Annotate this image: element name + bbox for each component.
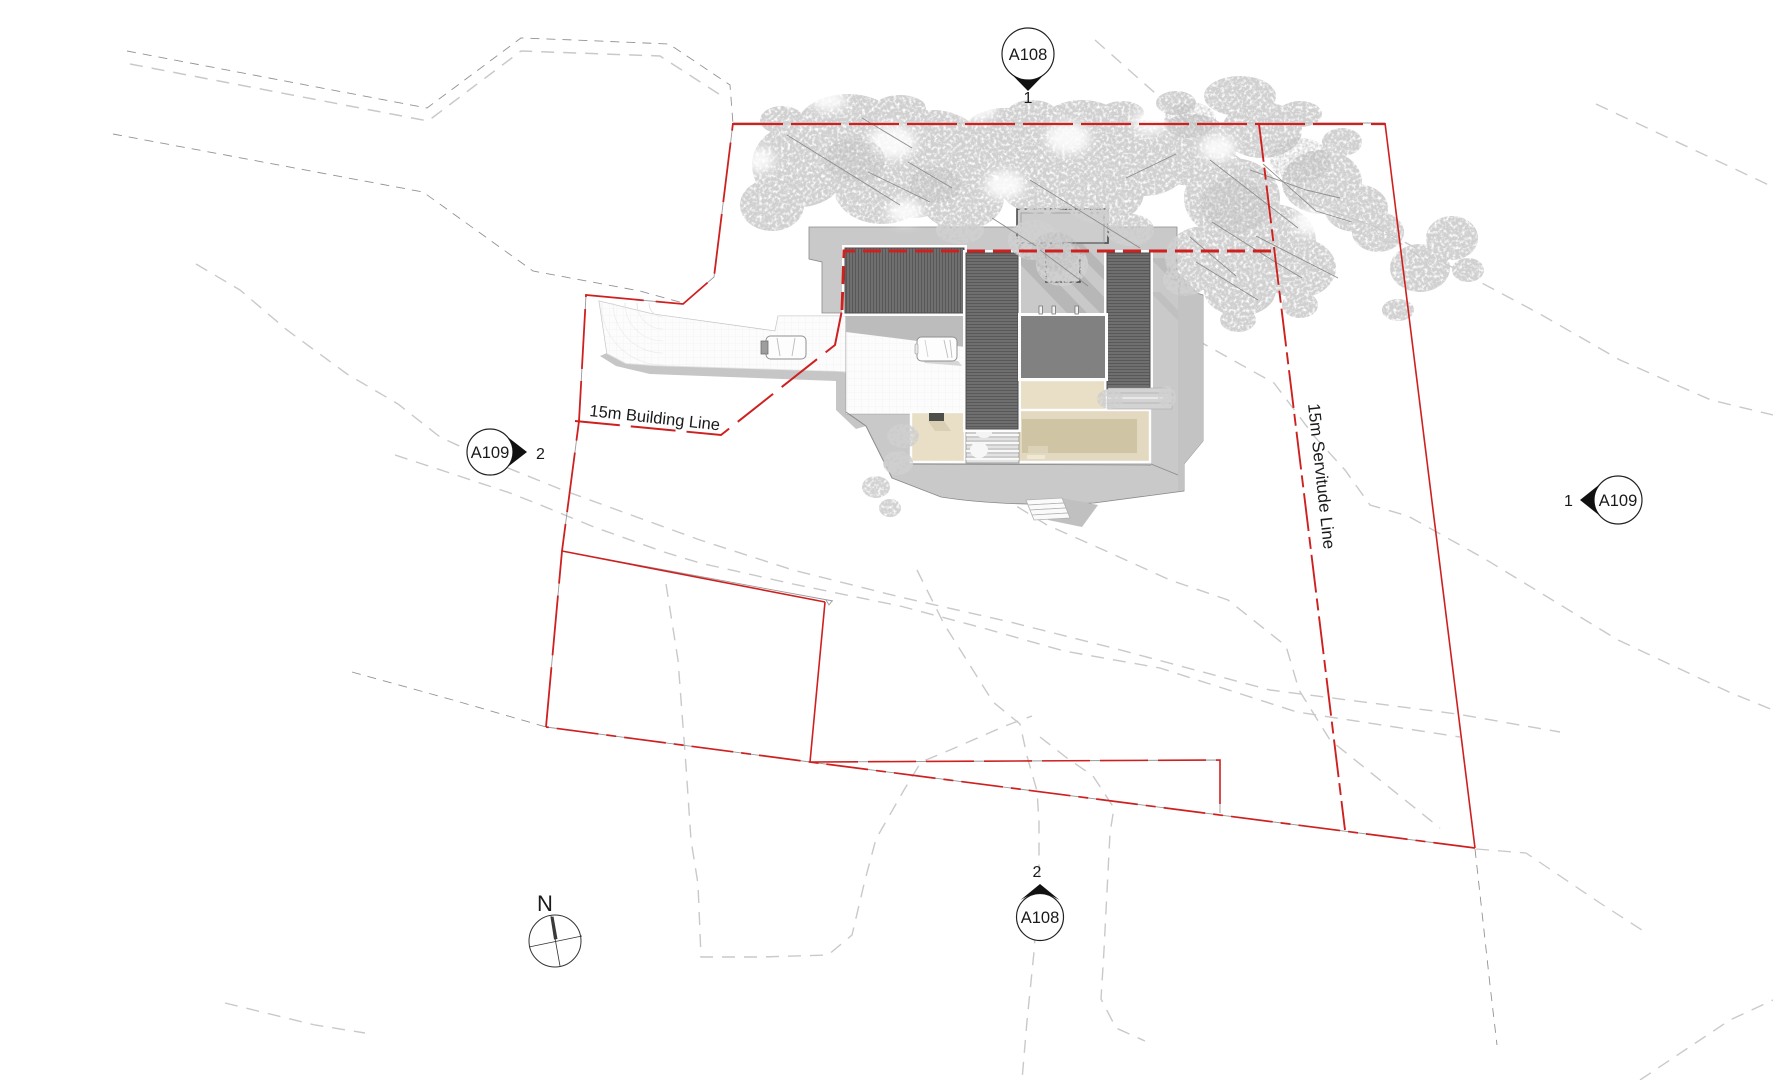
svg-text:2: 2 <box>536 446 545 463</box>
svg-text:N: N <box>537 891 553 916</box>
svg-text:A108: A108 <box>1021 909 1060 927</box>
svg-text:A109: A109 <box>471 444 510 462</box>
svg-text:1: 1 <box>1024 90 1033 107</box>
svg-text:A108: A108 <box>1009 46 1048 64</box>
svg-text:A109: A109 <box>1599 492 1638 510</box>
svg-text:1: 1 <box>1564 493 1573 510</box>
svg-text:2: 2 <box>1033 864 1042 881</box>
